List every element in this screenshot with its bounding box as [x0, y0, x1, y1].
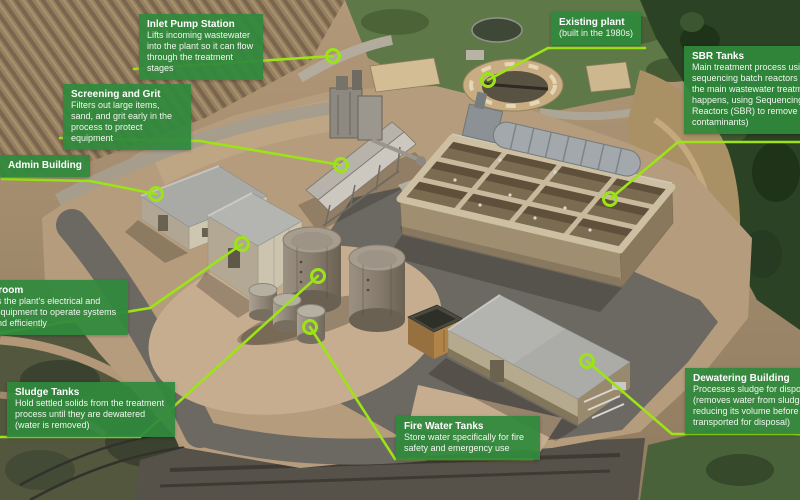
- callout-title: Dewatering Building: [693, 373, 800, 384]
- tank-port: [300, 261, 303, 264]
- tank-base: [249, 309, 277, 321]
- tree-canopy: [752, 142, 800, 202]
- admin-door: [158, 215, 168, 231]
- callout-dewatering-building: Dewatering Building Processes sludge for…: [685, 368, 800, 434]
- callout-title: Inlet Pump Station: [147, 19, 255, 30]
- callout-switchroom: Switchroom Contains the plant's electric…: [0, 280, 128, 335]
- tank-top: [297, 305, 325, 318]
- stair-platform: [612, 382, 626, 390]
- dewatering-door: [490, 360, 504, 382]
- callout-screening-and-grit: Screening and Grit Filters out large ite…: [63, 84, 191, 150]
- sludge-tank-2: [349, 245, 405, 332]
- tree-canopy: [680, 12, 704, 32]
- callout-title: Switchroom: [0, 285, 120, 296]
- tank-port: [367, 279, 370, 282]
- tower-equipment: [336, 76, 348, 90]
- pipe-joint: [416, 156, 426, 166]
- fire-water-tank-3: [297, 305, 325, 345]
- tank-port: [300, 271, 303, 274]
- callout-fire-water-tanks: Fire Water Tanks Store water specificall…: [396, 416, 540, 460]
- fire-water-tank-2: [273, 294, 301, 333]
- callout-body: Processes sludge for disposal (removes w…: [693, 384, 800, 428]
- tank-port: [300, 281, 303, 284]
- scrub-patch: [5, 450, 75, 490]
- fire-water-tank-1: [249, 284, 277, 322]
- switchroom-door: [228, 248, 240, 268]
- tank-top: [273, 294, 301, 307]
- tower-equipment: [352, 70, 362, 90]
- callout-sludge-tanks: Sludge Tanks Hold settled solids from th…: [7, 382, 175, 437]
- callout-existing-plant: Existing plant (built in the 1980s): [551, 12, 641, 45]
- callout-body: Store water specifically for fire safety…: [404, 432, 532, 454]
- lawn-shrubs: [361, 9, 429, 35]
- callout-sbr-tanks: SBR Tanks Main treatment process using s…: [684, 46, 800, 134]
- callout-title: Sludge Tanks: [15, 387, 167, 398]
- callout-title: Fire Water Tanks: [404, 421, 532, 432]
- callout-body: (built in the 1980s): [559, 28, 633, 39]
- callout-body: Hold settled solids from the treatment p…: [15, 398, 167, 431]
- tank-base: [297, 332, 325, 344]
- callout-body: Filters out large items, sand, and grit …: [71, 100, 183, 144]
- callout-inlet-pump-station: Inlet Pump Station Lifts incoming wastew…: [139, 14, 263, 80]
- tank-top: [249, 284, 277, 297]
- callout-body: Lifts incoming wastewater into the plant…: [147, 30, 255, 74]
- callout-body: Main treatment process using sequencing …: [692, 62, 800, 128]
- tank-base: [273, 320, 301, 332]
- existing-shed: [466, 50, 484, 60]
- callout-admin-building: Admin Building: [0, 155, 90, 177]
- callout-body: Contains the plant's electrical and cont…: [0, 296, 120, 329]
- scrub-patch: [706, 454, 774, 486]
- callout-title: SBR Tanks: [692, 51, 800, 62]
- callout-title: Admin Building: [8, 160, 82, 171]
- tank-base: [349, 308, 405, 332]
- callout-title: Existing plant: [559, 17, 633, 28]
- callout-title: Screening and Grit: [71, 89, 183, 100]
- inlet-tower: [358, 96, 382, 140]
- inlet-tower: [330, 88, 362, 138]
- wastewater-plant-annotated-aerial: Inlet Pump Station Lifts incoming wastew…: [0, 0, 800, 500]
- existing-pond: [472, 18, 522, 42]
- existing-building: [586, 62, 631, 92]
- tank-port: [367, 289, 370, 292]
